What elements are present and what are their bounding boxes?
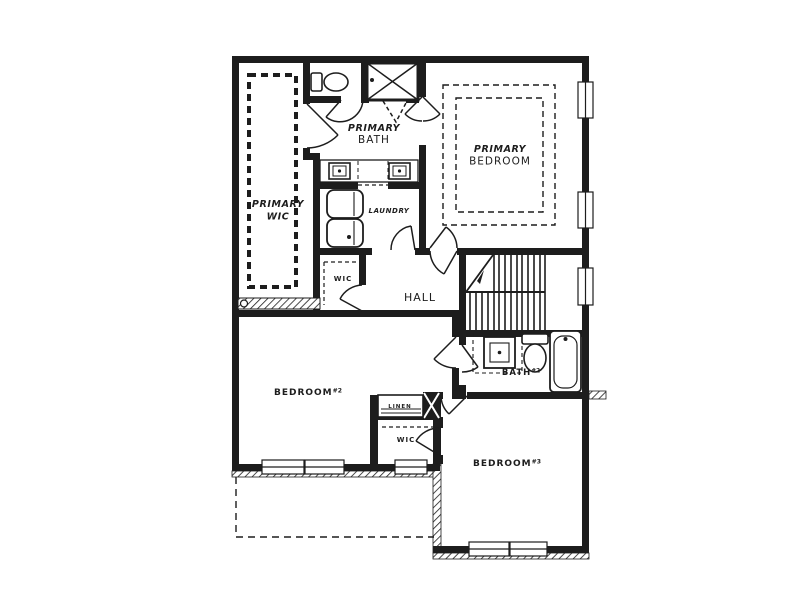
shower-fixture xyxy=(367,63,418,100)
toilet-primary-fixture xyxy=(311,73,348,91)
window-right-3 xyxy=(578,268,593,305)
toilet-bath2-fixture xyxy=(522,334,548,372)
bathtub-fixture xyxy=(550,331,581,392)
window-bedroom3-1 xyxy=(469,542,509,556)
label-bedroom-2: BEDROOM#2 xyxy=(274,387,342,398)
bath2-vanity-fixture xyxy=(473,332,522,373)
door-wic-hall xyxy=(340,285,362,311)
label-wic-hall: WIC xyxy=(334,275,352,283)
label-linen: LINEN xyxy=(388,404,412,410)
label-laundry: LAUNDRY xyxy=(369,207,410,215)
floor-plan-page: PRIMARYBATHPRIMARYBEDROOMPRIMARYWICLAUND… xyxy=(0,0,800,600)
label-wic-bedroom3: WIC xyxy=(397,436,415,444)
window-bedroom2-3 xyxy=(395,460,427,474)
window-right-1 xyxy=(578,82,593,118)
window-bedroom3-2 xyxy=(510,542,547,556)
closet-rod-primary-wic xyxy=(238,298,320,309)
door-bath-2 xyxy=(462,345,478,372)
window-right-2 xyxy=(578,192,593,228)
window-bedroom2-1 xyxy=(262,460,304,474)
label-bedroom-3: BEDROOM#3 xyxy=(473,458,541,469)
door-toilet-room xyxy=(326,100,363,122)
label-primary-bath: PRIMARYBATH xyxy=(348,123,401,146)
closet-shelving-primary-wic xyxy=(249,75,296,287)
roof-below-outline xyxy=(236,477,434,537)
door-bath-to-wic xyxy=(307,104,338,148)
washer-dryer-fixture xyxy=(327,190,363,247)
window-bedroom2-2 xyxy=(305,460,344,474)
label-hall: HALL xyxy=(404,291,436,304)
label-primary-bedroom: PRIMARYBEDROOM xyxy=(469,144,531,168)
stairs xyxy=(466,255,545,330)
floor-plan-svg: PRIMARYBATHPRIMARYBEDROOMPRIMARYWICLAUND… xyxy=(0,0,800,600)
chase-column xyxy=(423,392,440,419)
door-laundry xyxy=(391,226,415,250)
label-bath-2: BATH#2 xyxy=(502,368,540,378)
door-bedroom-2 xyxy=(434,337,456,368)
double-vanity-fixture xyxy=(320,160,418,182)
door-shower xyxy=(383,101,407,122)
door-primary-bedroom xyxy=(430,227,457,274)
door-swings xyxy=(307,97,478,455)
